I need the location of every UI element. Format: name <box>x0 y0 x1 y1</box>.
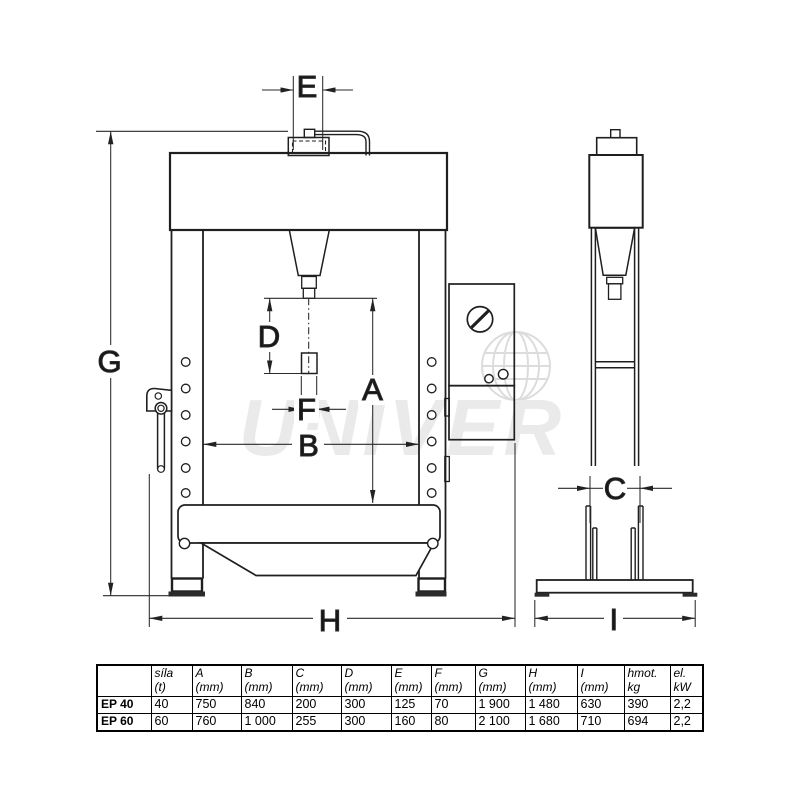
pump-plug <box>304 129 314 137</box>
side-ram-cone <box>595 228 634 275</box>
spec-cell: 300 <box>341 714 391 732</box>
side-base <box>537 580 693 593</box>
spec-header-cell: hmot.kg <box>624 665 670 697</box>
hand-lever <box>147 388 172 472</box>
dimension-label-i: I <box>609 602 618 637</box>
spec-cell: 840 <box>241 697 292 714</box>
ram-cone <box>289 230 329 276</box>
side-foot <box>535 593 550 597</box>
spec-cell: 200 <box>292 697 341 714</box>
spec-row-ep60: EP 60 60 760 1 000 255 300 160 80 2 100 … <box>97 714 703 732</box>
spec-header-cell: F(mm) <box>431 665 475 697</box>
side-cylinder <box>589 155 642 228</box>
spec-cell: 300 <box>341 697 391 714</box>
spec-table: síla(t) A(mm) B(mm) C(mm) D(mm) E(mm) F(… <box>96 664 704 732</box>
spec-cell: 60 <box>151 714 192 732</box>
side-foot <box>683 593 698 597</box>
table-pin <box>179 538 189 548</box>
dimension-label-b: B <box>298 428 319 463</box>
side-view <box>535 130 698 597</box>
press-technical-drawing: UNIVER <box>0 0 800 800</box>
press-pad-block <box>302 353 318 374</box>
head-beam <box>170 153 447 230</box>
spec-header-row: síla(t) A(mm) B(mm) C(mm) D(mm) E(mm) F(… <box>97 665 703 697</box>
front-view <box>147 129 515 596</box>
gauge-needle <box>472 311 489 328</box>
dimension-label-e: E <box>297 69 318 104</box>
dimension-label-h: H <box>319 603 341 638</box>
spec-cell: 1 000 <box>241 714 292 732</box>
spec-cell: 2 100 <box>475 714 525 732</box>
piston-rod <box>302 277 317 289</box>
watermark-text: UNIVER <box>239 383 565 472</box>
table-pin <box>428 538 438 548</box>
pump-port <box>485 375 493 383</box>
side-piston-tip <box>609 284 621 300</box>
spec-cell: 2,2 <box>670 714 703 732</box>
spec-row-label: EP 40 <box>97 697 151 714</box>
dimension-label-f: F <box>297 392 316 427</box>
spec-cell: 2,2 <box>670 697 703 714</box>
spec-cell: 1 480 <box>525 697 577 714</box>
spec-cell: 125 <box>391 697 431 714</box>
spec-cell: 694 <box>624 714 670 732</box>
dimension-label-c: C <box>604 471 626 506</box>
spec-cell: 70 <box>431 697 475 714</box>
pump-port <box>498 369 508 379</box>
spec-header-cell: A(mm) <box>192 665 241 697</box>
worktable <box>178 505 440 576</box>
spec-header-cell <box>97 665 151 697</box>
front-feet <box>169 579 447 597</box>
spec-row-label: EP 60 <box>97 714 151 732</box>
spec-cell: 710 <box>577 714 624 732</box>
spec-header-cell: D(mm) <box>341 665 391 697</box>
spec-cell: 1 680 <box>525 714 577 732</box>
spec-header-cell: G(mm) <box>475 665 525 697</box>
spec-header-cell: síla(t) <box>151 665 192 697</box>
spec-cell: 1 900 <box>475 697 525 714</box>
spec-cell: 760 <box>192 714 241 732</box>
spec-header-cell: H(mm) <box>525 665 577 697</box>
spec-cell: 255 <box>292 714 341 732</box>
dimension-label-g: G <box>97 344 121 379</box>
side-knob <box>611 130 620 138</box>
top-cylinder-inner-dashed <box>293 141 326 153</box>
spec-cell: 390 <box>624 697 670 714</box>
spec-cell: 40 <box>151 697 192 714</box>
side-cap <box>597 138 637 155</box>
side-table-plates <box>586 506 643 580</box>
dimension-label-d: D <box>258 319 280 354</box>
watermark: UNIVER <box>239 332 565 472</box>
spec-cell: 160 <box>391 714 431 732</box>
spec-header-cell: el.kW <box>670 665 703 697</box>
spec-header-cell: B(mm) <box>241 665 292 697</box>
side-column <box>591 228 638 466</box>
spec-cell: 750 <box>192 697 241 714</box>
spec-cell: 80 <box>431 714 475 732</box>
spec-header-cell: E(mm) <box>391 665 431 697</box>
spec-header-cell: I(mm) <box>577 665 624 697</box>
spec-row-ep40: EP 40 40 750 840 200 300 125 70 1 900 1 … <box>97 697 703 714</box>
piston-tip <box>303 288 314 298</box>
spec-header-cell: C(mm) <box>292 665 341 697</box>
dimension-label-a: A <box>362 372 383 407</box>
side-piston-rod <box>607 277 623 284</box>
spec-cell: 630 <box>577 697 624 714</box>
